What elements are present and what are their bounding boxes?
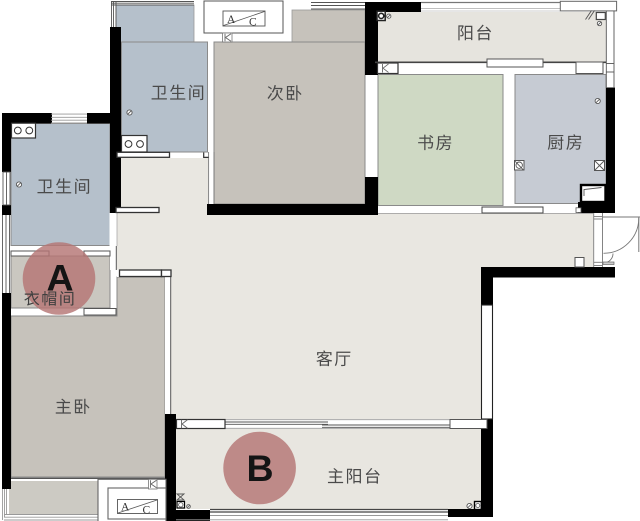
svg-text:A: A: [227, 14, 236, 26]
svg-text:A: A: [121, 502, 130, 514]
svg-text:C: C: [249, 17, 257, 29]
svg-text:B: B: [246, 447, 273, 489]
svg-text:C: C: [143, 505, 151, 517]
